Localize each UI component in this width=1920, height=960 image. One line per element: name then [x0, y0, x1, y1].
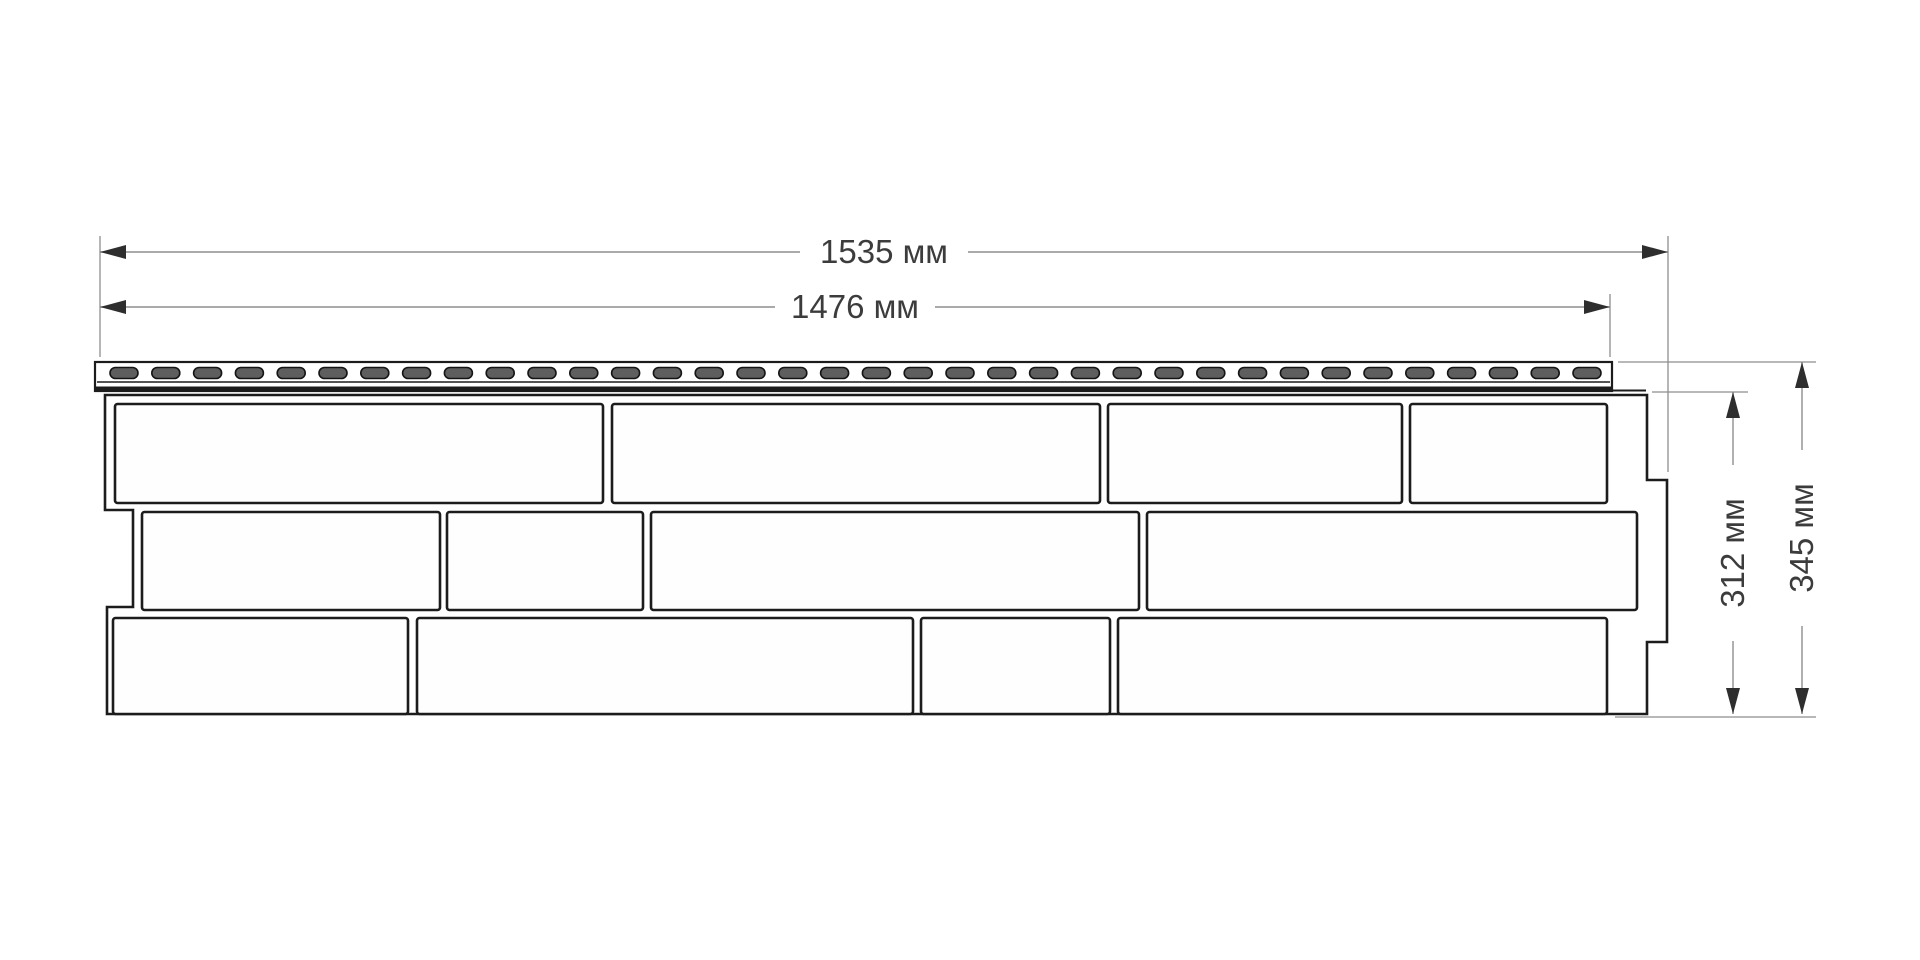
nail-slot — [612, 368, 640, 379]
brick — [1147, 512, 1637, 610]
brick — [651, 512, 1139, 610]
brick — [612, 404, 1100, 503]
nail-slot — [1364, 368, 1392, 379]
nail-slot — [1280, 368, 1308, 379]
brick — [115, 404, 603, 503]
nail-slot — [862, 368, 890, 379]
nail-slot — [235, 368, 263, 379]
nail-slot — [194, 368, 222, 379]
dimension-arrowhead — [1726, 688, 1740, 714]
brick — [921, 618, 1110, 714]
nail-slot — [152, 368, 180, 379]
dimension-arrowhead — [1795, 362, 1809, 388]
nail-slot — [1071, 368, 1099, 379]
nail-slot — [695, 368, 723, 379]
brick — [417, 618, 913, 714]
nail-slot — [1448, 368, 1476, 379]
brick — [113, 618, 408, 714]
nail-slot — [528, 368, 556, 379]
nail-slot — [110, 368, 138, 379]
brick — [1118, 618, 1607, 714]
nail-slot — [1406, 368, 1434, 379]
brick — [1410, 404, 1607, 503]
nail-strip — [95, 362, 1646, 391]
dimension-arrowhead — [100, 300, 126, 314]
nail-slot — [653, 368, 681, 379]
nail-slot — [821, 368, 849, 379]
nail-slot — [1113, 368, 1141, 379]
nail-slot — [277, 368, 305, 379]
nail-slot — [1030, 368, 1058, 379]
dimension-arrowhead — [1726, 392, 1740, 418]
nail-slot — [403, 368, 431, 379]
nail-slot — [361, 368, 389, 379]
nail-slot — [1197, 368, 1225, 379]
dimension-arrowhead — [1584, 300, 1610, 314]
dim-label-total-height: 345 мм — [1783, 483, 1820, 593]
nail-slot — [946, 368, 974, 379]
nail-slot — [1155, 368, 1183, 379]
dim-label-useful-height: 312 мм — [1714, 498, 1751, 608]
strip-shadow-band — [96, 387, 1611, 391]
brick — [447, 512, 643, 610]
nail-slot — [1573, 368, 1601, 379]
nail-slot — [1239, 368, 1267, 379]
nail-slot — [904, 368, 932, 379]
panel-technical-drawing: 1535 мм 1476 мм 312 мм 345 мм — [0, 0, 1920, 960]
dimension-arrowhead — [1795, 688, 1809, 714]
dimension-arrowhead — [1642, 245, 1668, 259]
dim-label-total-width: 1535 мм — [820, 233, 948, 270]
drawing-canvas: 1535 мм 1476 мм 312 мм 345 мм — [0, 0, 1920, 960]
nail-slot — [570, 368, 598, 379]
brick — [1108, 404, 1402, 503]
nail-slot — [1531, 368, 1559, 379]
dimension-arrowhead — [100, 245, 126, 259]
nail-slot — [1489, 368, 1517, 379]
nail-slot — [988, 368, 1016, 379]
dim-label-useful-width: 1476 мм — [791, 288, 919, 325]
nail-slot — [779, 368, 807, 379]
nail-slot — [1322, 368, 1350, 379]
nail-slot — [486, 368, 514, 379]
nail-slot — [737, 368, 765, 379]
nail-slot — [444, 368, 472, 379]
nail-slot — [319, 368, 347, 379]
brick — [142, 512, 440, 610]
